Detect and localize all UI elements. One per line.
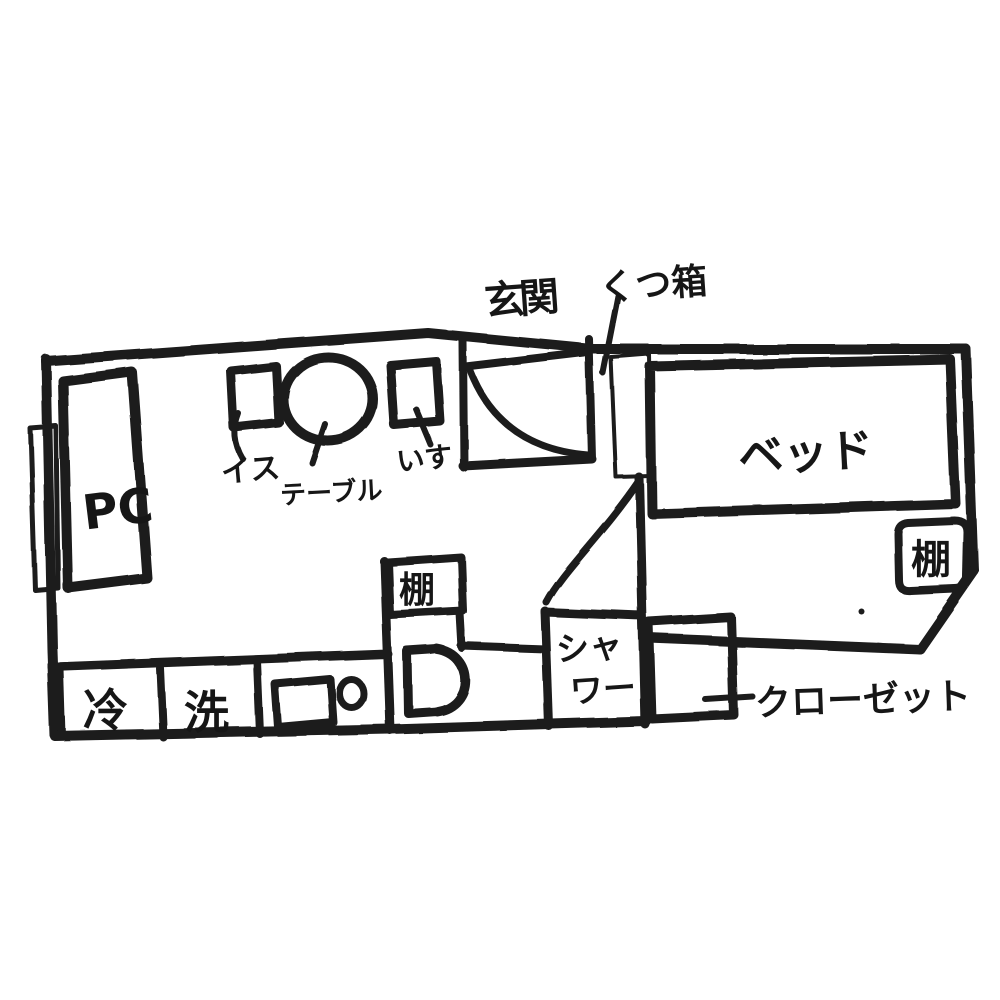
chair-left-label: イス bbox=[220, 451, 282, 491]
closet-label: クローゼット bbox=[754, 676, 971, 725]
genkan-right-wall bbox=[589, 339, 592, 459]
outer-wall-left bbox=[46, 359, 55, 736]
shoe-box bbox=[611, 354, 651, 477]
outer-wall-bottom-left bbox=[55, 721, 646, 736]
divider-fridge-washer bbox=[160, 668, 163, 737]
toilet-shelf-label: 棚 bbox=[399, 570, 435, 611]
ink-speck bbox=[859, 609, 865, 615]
closet-box bbox=[649, 617, 734, 719]
table-label: テーブル bbox=[279, 475, 383, 511]
washer-label: 洗 bbox=[184, 686, 229, 739]
shower-top-wall bbox=[545, 612, 642, 616]
shower-label-line2: ワー bbox=[569, 668, 638, 712]
closet-leader-line bbox=[706, 697, 753, 700]
entrance-label: 玄関 bbox=[483, 274, 559, 325]
outer-wall-top bbox=[46, 333, 966, 361]
floorplan-sketch: 玄関 くつ箱 ベッド 棚 棚 PC イス テーブル いす 冷 洗 シャ ワー ク… bbox=[0, 0, 1000, 1000]
genkan-inner-top-line bbox=[466, 353, 584, 367]
central-dividing-wall bbox=[639, 477, 645, 724]
kitchen-burner-circle bbox=[339, 679, 363, 707]
chair-right-label: いす bbox=[395, 440, 454, 479]
table-circle bbox=[283, 357, 373, 441]
divider-washer-kitchen bbox=[257, 661, 260, 734]
kitchen-sink-rect bbox=[275, 679, 333, 727]
appliance-row-top-wall bbox=[52, 654, 388, 667]
shoe-box-label: くつ箱 bbox=[598, 261, 709, 309]
shower-left-wall bbox=[545, 611, 549, 726]
bedroom-shelf-label: 棚 bbox=[911, 537, 951, 583]
pc-label: PC bbox=[79, 477, 156, 541]
bed-label: ベッド bbox=[737, 423, 875, 483]
entrance-door-arc bbox=[470, 370, 588, 455]
chair-left-leader-line bbox=[235, 414, 243, 459]
bedroom-bottom-wall bbox=[648, 638, 920, 649]
fridge-label: 冷 bbox=[83, 684, 128, 737]
shower-label-line1: シャ bbox=[555, 625, 624, 669]
interior-door-arc bbox=[546, 482, 638, 602]
toilet-bowl bbox=[437, 649, 465, 711]
genkan-left-wall bbox=[463, 341, 464, 468]
chair-right bbox=[390, 361, 440, 425]
genkan-bottom-wall bbox=[463, 459, 592, 466]
sketch-page: 玄関 くつ箱 ベッド 棚 棚 PC イス テーブル いす 冷 洗 シャ ワー ク… bbox=[0, 0, 1000, 1000]
toilet-shower-wall bbox=[461, 646, 546, 649]
fridge-left-edge bbox=[60, 669, 62, 736]
toilet-tank bbox=[407, 649, 437, 713]
